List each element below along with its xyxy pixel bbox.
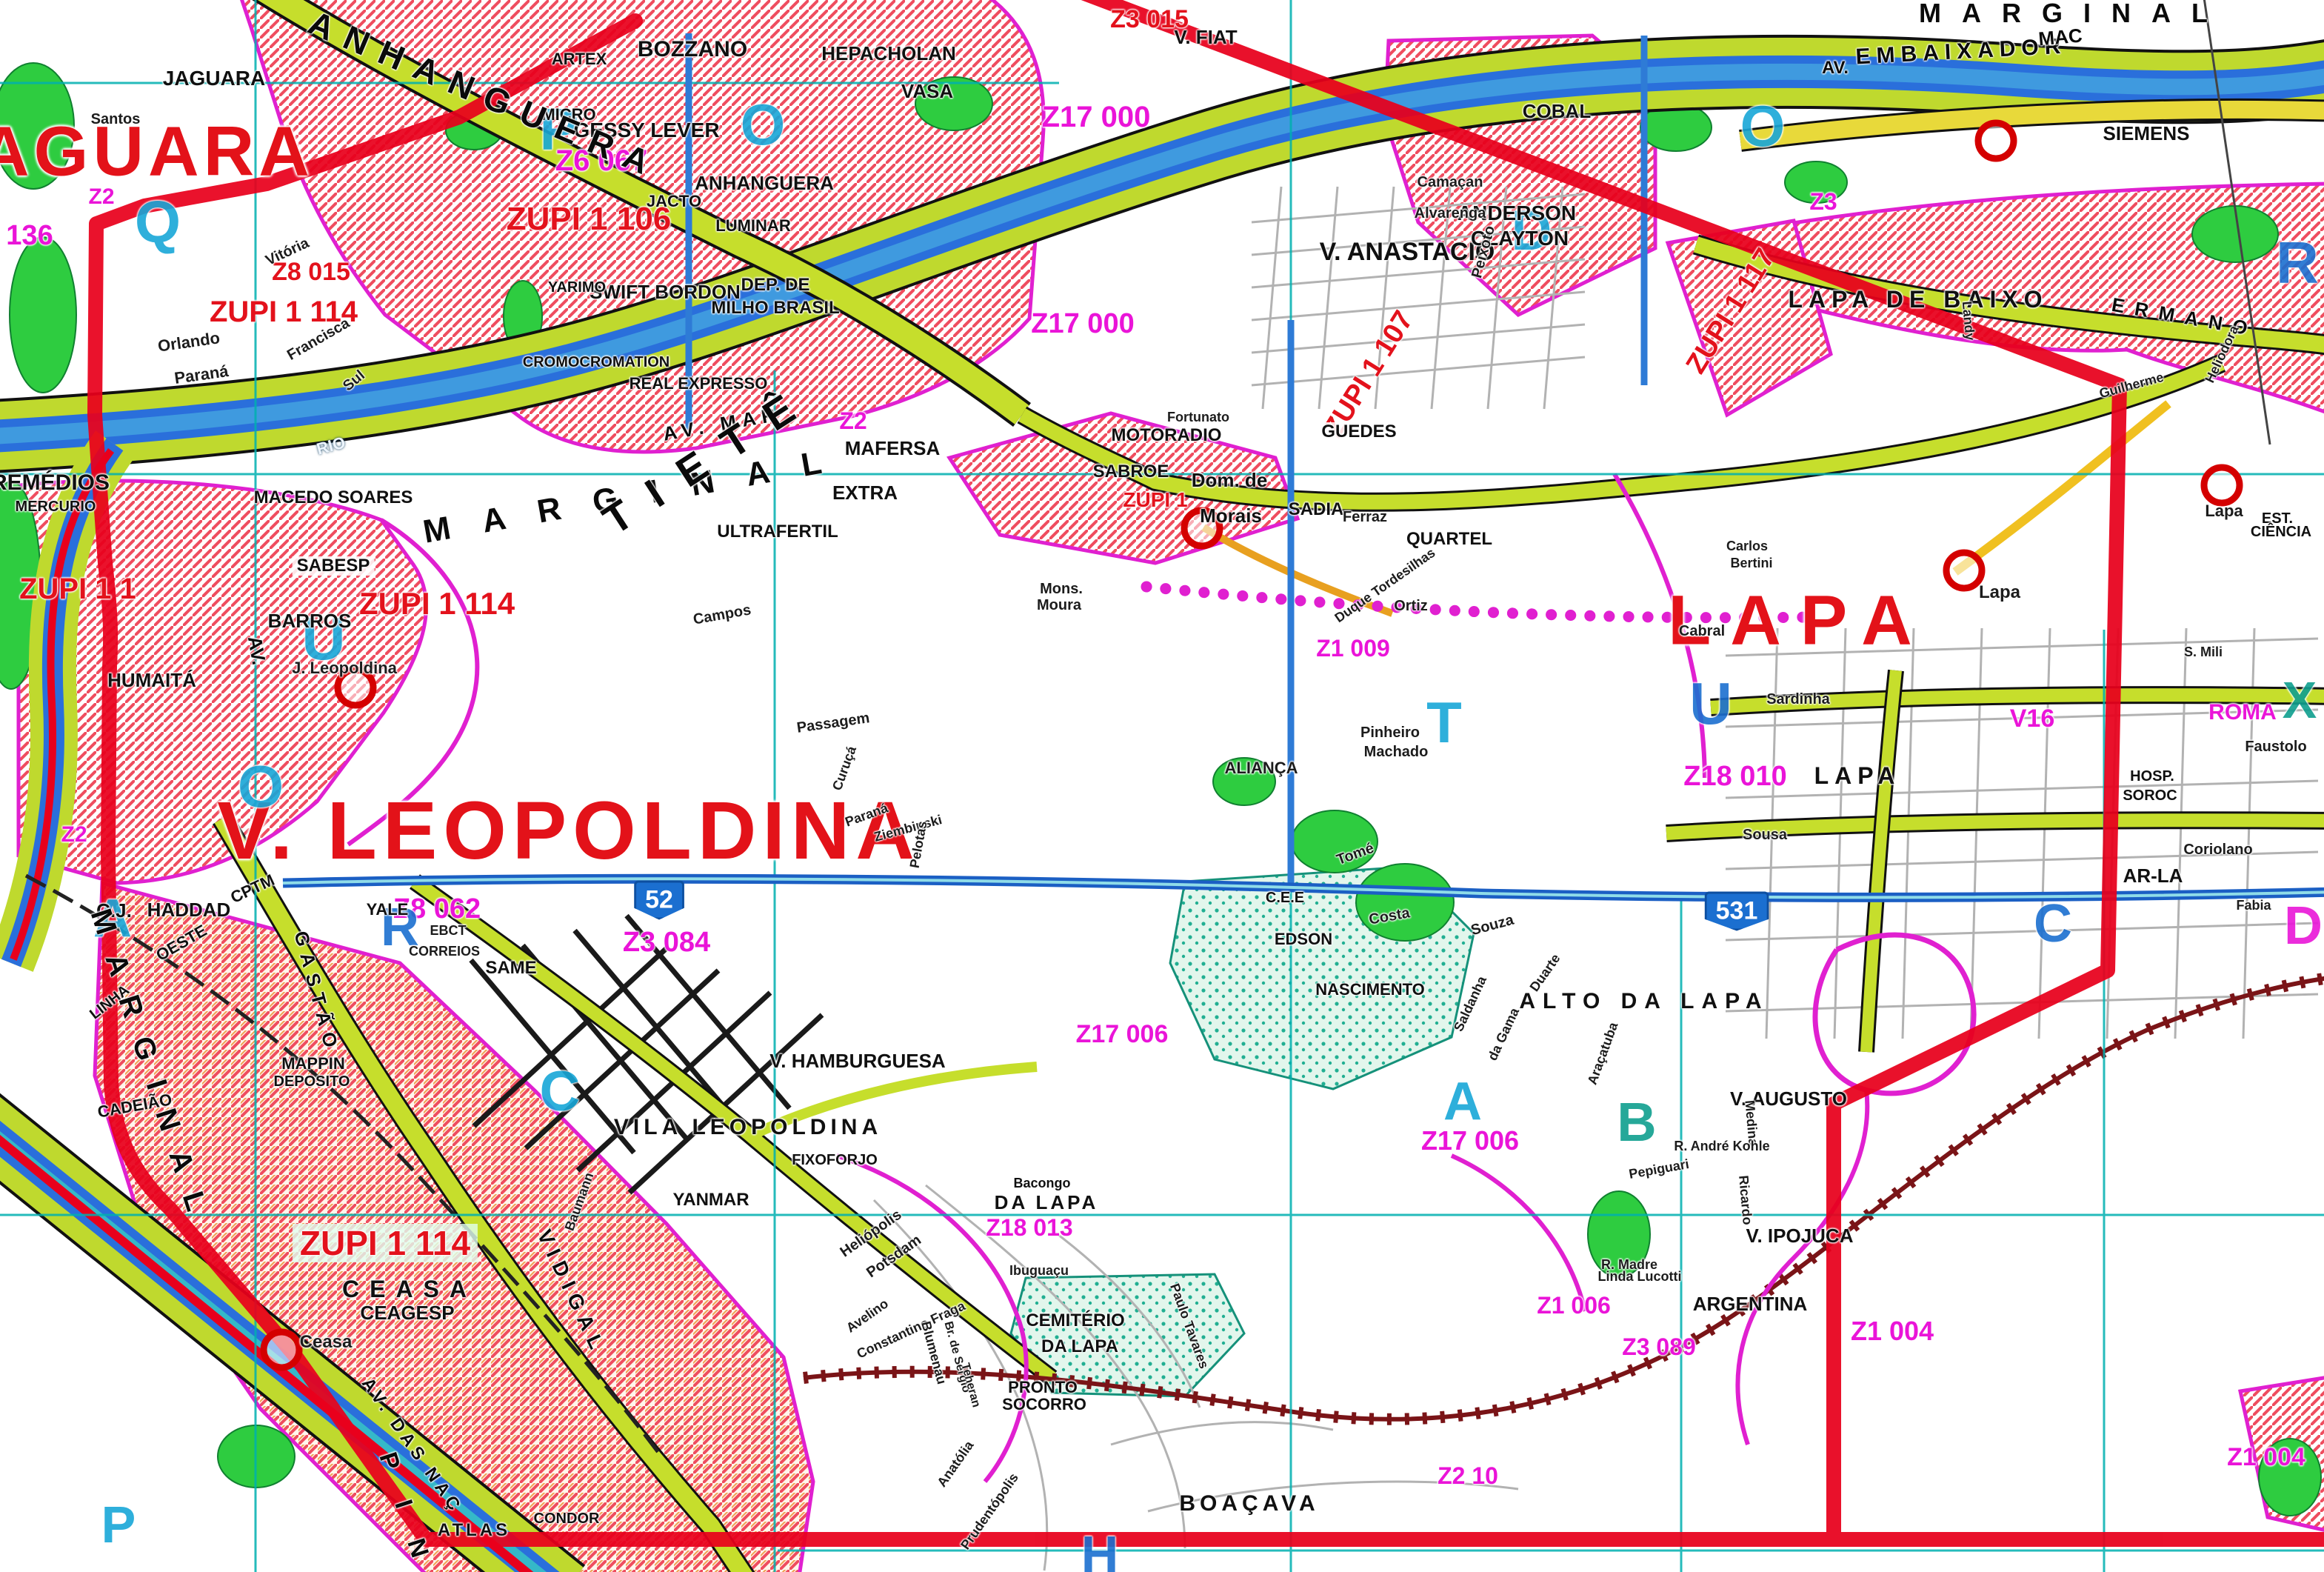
label-alto-da-lapa: ALTO DA LAPA xyxy=(1519,990,1769,1013)
label-u: U xyxy=(1689,674,1732,733)
label-sabesp: SABESP xyxy=(293,556,375,576)
label-z1-009: Z1 009 xyxy=(1316,636,1390,660)
label-z2-10: Z2 10 xyxy=(1438,1464,1498,1488)
label-tom: Tomé xyxy=(1335,841,1376,868)
label-lapa: Lapa xyxy=(1979,584,2020,602)
label-ceasa: CEASA xyxy=(342,1277,477,1301)
label-roma: ROMA xyxy=(2208,702,2277,724)
label-r: R xyxy=(2276,233,2319,293)
label-z1-004: Z1 004 xyxy=(1851,1318,1934,1345)
label-c-e-e: C.E.E xyxy=(1266,890,1304,905)
label-bertini: Bertini xyxy=(1730,556,1772,570)
label-campos: Campos xyxy=(692,602,752,627)
label-costa: Costa xyxy=(1368,905,1411,927)
label-q: Q xyxy=(135,193,181,252)
label-lapa: LAPA xyxy=(1814,764,1901,787)
label-artex: ARTEX xyxy=(552,51,607,67)
label-anhanguera: ANHANGUERA xyxy=(695,173,834,193)
label-ultrafertil: ULTRAFERTIL xyxy=(717,523,838,541)
label-atlas: ATLAS xyxy=(438,1522,510,1539)
label-avelino: Avelino xyxy=(844,1296,890,1335)
label-jaguara: JAGUARA xyxy=(163,68,265,89)
label-z18-013: Z18 013 xyxy=(986,1216,1072,1239)
label-r-andr-kohle: R. André Kohle xyxy=(1674,1139,1769,1153)
label-cama-an: Camaçan xyxy=(1418,175,1483,190)
label-z17-000: Z17 000 xyxy=(1042,102,1151,132)
route-shield-531: 531 xyxy=(1705,892,1769,931)
label-lapa-de-baixo: LAPA DE BAIXO xyxy=(1788,287,2048,311)
label-orlando: Orlando xyxy=(157,330,221,355)
label-z2: Z2 xyxy=(61,824,87,846)
label-o: O xyxy=(741,96,786,153)
label-moura: Moura xyxy=(1037,598,1081,613)
label-c: C xyxy=(540,1064,581,1120)
label-guedes: GUEDES xyxy=(1317,422,1400,442)
label-mappin: MAPPIN xyxy=(281,1056,345,1072)
label-a: A xyxy=(1443,1075,1482,1128)
label-hepacholan: HEPACHOLAN xyxy=(821,44,956,63)
label-motoradio: MOTORADIO xyxy=(1112,427,1222,444)
label-jacto: JACTO xyxy=(647,193,701,210)
label-v-leopoldina: V. LEOPOLDINA xyxy=(217,790,921,872)
label-fixoforjo: FIXOFORJO xyxy=(792,1153,878,1168)
label-marginal: MARGINAL xyxy=(86,905,218,1236)
label-quartel: QUARTEL xyxy=(1406,530,1492,548)
label-saldanha: Saldanha xyxy=(1452,974,1489,1033)
label-vidigal: VIDIGAL xyxy=(534,1227,610,1359)
label-macedo-soares: MACEDO SOARES xyxy=(254,489,413,507)
label-mac: MAC xyxy=(2037,25,2083,48)
label-z2: Z2 xyxy=(88,186,114,208)
label-z1-004: Z1 004 xyxy=(2227,1445,2305,1470)
label-z17-006: Z17 006 xyxy=(1421,1128,1519,1154)
label-jaguara: JAGUARA xyxy=(0,117,314,187)
label-fortunato: Fortunato xyxy=(1167,410,1229,424)
label-hosp: HOSP. xyxy=(2130,769,2174,784)
label-vila-leopoldina: VILA LEOPOLDINA xyxy=(614,1116,882,1139)
label-cromocromation: CROMOCROMATION xyxy=(523,355,670,370)
label-z17-000: Z17 000 xyxy=(1031,310,1134,338)
label-santos: Santos xyxy=(91,112,141,127)
label-sabroe: SABROE xyxy=(1093,463,1169,481)
label-alian-a: ALIANÇA xyxy=(1225,760,1298,776)
label-v-ipojuca: V. IPOJUCA xyxy=(1746,1226,1854,1245)
label-z3-089: Z3 089 xyxy=(1622,1335,1696,1359)
label-extra: EXTRA xyxy=(832,483,898,502)
label-passagem: Passagem xyxy=(796,710,871,736)
label-cobal: COBAL xyxy=(1523,101,1591,121)
label-prudent-polis: Prudentópolis xyxy=(958,1471,1021,1551)
label-lapa: LAPA xyxy=(1668,586,1931,656)
label-luminar: LUMINAR xyxy=(715,218,790,234)
label-machado: Machado xyxy=(1364,745,1429,759)
label-milho-brasil: MILHO BRASIL xyxy=(711,299,839,317)
label-o: O xyxy=(1740,97,1786,155)
label-h: H xyxy=(1081,1528,1119,1572)
label-souza: Souza xyxy=(1469,913,1515,939)
label-paulo-tavares: Paulo Tavares xyxy=(1168,1282,1211,1370)
label-sardinha: Sardinha xyxy=(1766,692,1830,707)
label-guilherme: Guilherme xyxy=(2098,370,2166,400)
label-z3: Z3 xyxy=(1809,190,1837,213)
label-zupi-1: ZUPI 1 xyxy=(1123,490,1187,510)
label-ci-ncia: CIÊNCIA xyxy=(2251,524,2311,539)
label-v-hamburguesa: V. HAMBURGUESA xyxy=(769,1051,945,1070)
label-soroc: SOROC xyxy=(2123,788,2177,803)
label-same: SAME xyxy=(485,959,536,977)
label-embaixador: EMBAIXADOR xyxy=(1855,36,2067,69)
label-yarimo: YARIMO xyxy=(548,280,606,295)
label-j-leopoldina: J. Leopoldina xyxy=(292,660,397,676)
label-lapa: Lapa xyxy=(2205,503,2243,519)
label-carlos: Carlos xyxy=(1726,539,1768,553)
label-oeste: OESTE xyxy=(153,922,210,964)
label-deposito: DEPOSITO xyxy=(274,1074,350,1089)
label-alvarenga: Alvarenga xyxy=(1415,206,1486,221)
label-correios: CORREIOS xyxy=(409,945,480,958)
label-nascimento: NASCIMENTO xyxy=(1315,982,1425,998)
label-mercurio: MERCURIO xyxy=(16,499,96,514)
label-cptm: CPTM xyxy=(228,872,277,906)
label-vasa: VASA xyxy=(901,81,953,101)
label-z18-010: Z18 010 xyxy=(1683,762,1786,790)
label-socorro: SOCORRO xyxy=(1002,1396,1086,1413)
label-yanmar: YANMAR xyxy=(672,1191,749,1209)
label-ceasa: Ceasa xyxy=(300,1333,353,1351)
label-cemit-rio: CEMITÉRIO xyxy=(1026,1312,1124,1330)
label-anhanguera: ANHANGUERA xyxy=(304,5,666,184)
label-ferraz: Ferraz xyxy=(1343,510,1387,524)
label-linda-lucotti: Linda Lucotti xyxy=(1598,1270,1682,1283)
route-shield-52: 52 xyxy=(634,881,684,920)
label-zupi-1-114: ZUPI 1 114 xyxy=(359,588,515,619)
label-paran: Paraná xyxy=(173,363,230,387)
label-siemens: SIEMENS xyxy=(2103,124,2189,143)
label-x: X xyxy=(2283,674,2317,726)
label-haddad: HADDAD xyxy=(147,900,231,919)
label-sul: Sul xyxy=(341,367,368,393)
label-136: 136 xyxy=(6,222,53,250)
label-duarte: Duarte xyxy=(1527,951,1562,993)
label-coriolano: Coriolano xyxy=(2183,842,2252,857)
label-condor: CONDOR xyxy=(534,1511,600,1526)
label-anat-lia: Anatólia xyxy=(935,1439,975,1489)
label-ebct: EBCT xyxy=(430,924,467,937)
label-ara-atuba: Araçatuba xyxy=(1585,1021,1620,1087)
label-morais: Morais xyxy=(1200,506,1262,525)
label-z17-006: Z17 006 xyxy=(1076,1022,1169,1047)
label-sousa: Sousa xyxy=(1743,827,1787,842)
label-da-lapa: DA LAPA xyxy=(1041,1338,1118,1356)
label-fabia: Fabia xyxy=(2236,899,2271,912)
label-zupi-1-114: ZUPI 1 114 xyxy=(293,1224,478,1262)
label-cabral: Cabral xyxy=(1679,624,1725,639)
label-barros: BARROS xyxy=(268,611,352,630)
label-ortiz: Ortiz xyxy=(1394,599,1428,613)
label-z8-015: Z8 015 xyxy=(272,259,350,284)
label-v-anastacio: V. ANASTACIO xyxy=(1320,239,1495,264)
label-mons: Mons. xyxy=(1040,582,1083,596)
label-dep-de: DEP. DE xyxy=(741,276,810,294)
zoning-map: JAGUARAV. LEOPOLDINALAPAZUPI 1 106ZUPI 1… xyxy=(0,0,2324,1572)
label-o: O xyxy=(238,757,284,816)
label-argentina: ARGENTINA xyxy=(1693,1294,1808,1313)
label-ibugua-u: Ibuguaçu xyxy=(1009,1264,1069,1277)
label-z1-006: Z1 006 xyxy=(1537,1293,1611,1317)
label-av: AV. xyxy=(245,635,269,667)
label-baumann: Baumann xyxy=(563,1170,596,1232)
label-rio: RIO xyxy=(315,434,347,457)
label-c: C xyxy=(2034,897,2072,950)
label-ceagesp: CEAGESP xyxy=(360,1303,454,1322)
label-real-expresso: REAL EXPRESSO xyxy=(630,376,768,392)
label-landy: Landy xyxy=(1960,301,1977,341)
label-pinheiro: Pinheiro xyxy=(1360,725,1420,740)
label-dom-de: Dom. de xyxy=(1192,470,1268,490)
label-da-gama: da Gama xyxy=(1486,1006,1521,1063)
label-ricardo: Ricardo xyxy=(1737,1175,1754,1225)
label-boa-ava: BOAÇAVA xyxy=(1179,1493,1319,1515)
label-zupi-1-117: ZUPI 1 117 xyxy=(1682,244,1780,378)
label-v16: V16 xyxy=(2010,706,2055,731)
label-marginal: MARGINAL xyxy=(1919,0,2228,27)
label-pronto: PRONTO xyxy=(1008,1379,1078,1396)
label-faustolo: Faustolo xyxy=(2245,739,2306,754)
label-pepiguari: Pepiguari xyxy=(1628,1157,1690,1181)
label-p: P xyxy=(101,1499,136,1551)
label-gast-o: GASTÃO xyxy=(291,929,342,1056)
map-labels: JAGUARAV. LEOPOLDINALAPAZUPI 1 106ZUPI 1… xyxy=(0,0,2324,1572)
label-humait: HUMAITÁ xyxy=(107,670,196,690)
label-v-fiat: V. FIAT xyxy=(1174,27,1237,47)
label-av: AV. xyxy=(1822,59,1849,77)
label-sadia: SADIA xyxy=(1289,501,1344,519)
label-d: D xyxy=(2284,899,2323,953)
label-edson: EDSON xyxy=(1275,931,1332,947)
label-bozzano: BOZZANO xyxy=(638,39,747,61)
label-b: B xyxy=(1617,1095,1656,1150)
label-rem-dios: REMÉDIOS xyxy=(0,472,110,494)
label-t: T xyxy=(1426,693,1462,751)
label-da-lapa: DA LAPA xyxy=(995,1193,1099,1212)
label-ar-la: AR-LA xyxy=(2123,866,2183,885)
label-z3-084: Z3 084 xyxy=(623,928,710,956)
label-mafersa: MAFERSA xyxy=(845,439,941,458)
label-zupi-1-1: ZUPI 1 1 xyxy=(19,574,136,604)
label-s-mili: S. Mili xyxy=(2184,645,2223,659)
label-bacongo: Bacongo xyxy=(1009,1176,1075,1190)
label-yale: YALE xyxy=(367,902,409,918)
label-z2: Z2 xyxy=(839,409,867,433)
